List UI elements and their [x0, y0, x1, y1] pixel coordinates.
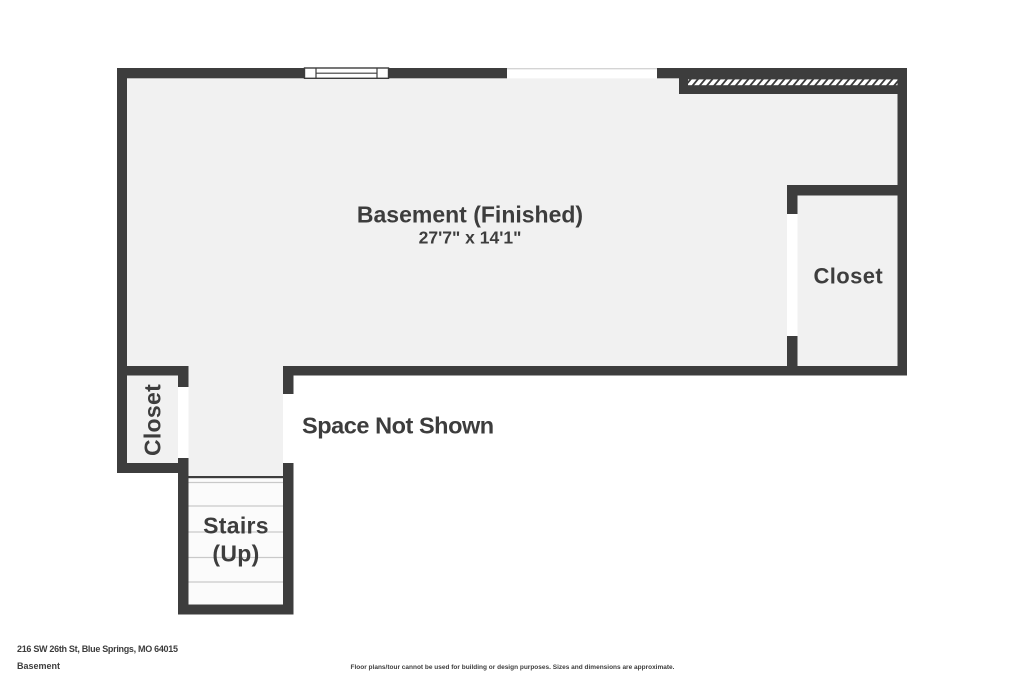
svg-text:(Up): (Up): [212, 541, 259, 567]
svg-text:Stairs: Stairs: [203, 513, 269, 539]
svg-text:Closet: Closet: [140, 384, 166, 456]
svg-text:Floor plans/tour cannot be use: Floor plans/tour cannot be used for buil…: [351, 664, 675, 671]
svg-text:Closet: Closet: [813, 264, 883, 289]
svg-text:216 SW 26th St, Blue Springs,: 216 SW 26th St, Blue Springs, MO 64015: [17, 644, 178, 654]
svg-text:Space Not Shown: Space Not Shown: [302, 413, 494, 439]
svg-text:27'7" x 14'1": 27'7" x 14'1": [419, 228, 522, 248]
svg-text:Basement (Finished): Basement (Finished): [357, 201, 583, 227]
svg-text:Basement: Basement: [17, 661, 60, 671]
